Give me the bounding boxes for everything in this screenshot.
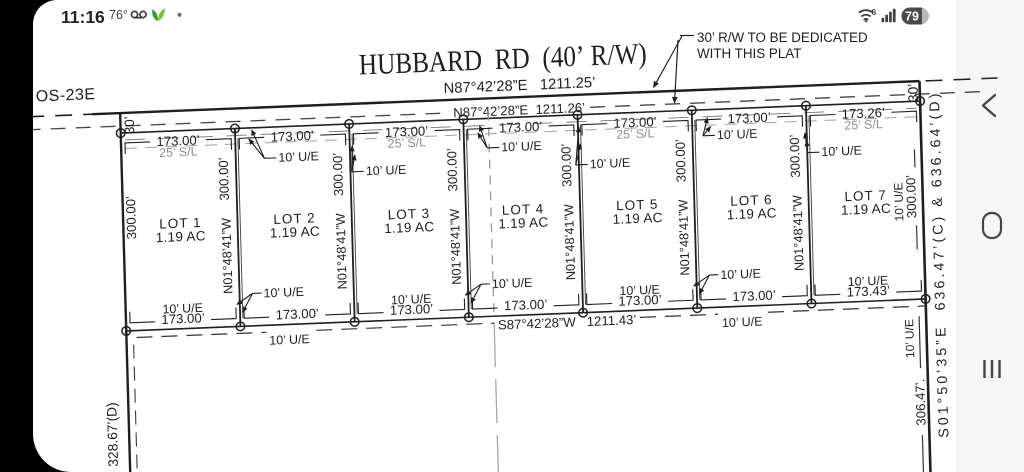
svg-text:25’ S/L: 25’ S/L (387, 135, 426, 151)
svg-text:173.00’: 173.00’ (270, 128, 314, 145)
svg-text:1.19 AC: 1.19 AC (270, 224, 320, 241)
svg-text:10’ U/E: 10’ U/E (501, 139, 542, 155)
svg-text:173.00’: 173.00’ (275, 306, 319, 323)
svg-text:10’ U/E: 10’ U/E (720, 267, 761, 283)
svg-text:N01°48’41”W: N01°48’41”W (447, 207, 464, 285)
svg-text:N01°48’41”W: N01°48’41”W (333, 212, 350, 290)
svg-text:30’ R/W TO BE DEDICATED: 30’ R/W TO BE DEDICATED (697, 30, 868, 45)
svg-text:10’ U/E: 10’ U/E (391, 292, 432, 308)
svg-text:10’ U/E: 10’ U/E (902, 319, 917, 358)
svg-text:10’ U/E: 10’ U/E (891, 182, 906, 221)
svg-text:N01°48’41”W: N01°48’41”W (789, 194, 806, 272)
svg-text:6: 6 (872, 7, 877, 17)
svg-text:10’ U/E: 10’ U/E (848, 273, 889, 289)
svg-text:25’ S/L: 25’ S/L (616, 126, 655, 142)
svg-text:173.00’: 173.00’ (504, 297, 548, 314)
svg-text:N01°48’41”W: N01°48’41”W (675, 198, 692, 276)
svg-text:10’ U/E: 10’ U/E (619, 283, 660, 299)
svg-text:300.00’: 300.00’ (673, 139, 689, 183)
svg-text:10’ U/E: 10’ U/E (717, 127, 758, 143)
svg-text:300.00’: 300.00’ (330, 152, 346, 196)
svg-text:11:16: 11:16 (61, 7, 105, 27)
svg-text:300.00’: 300.00’ (558, 143, 574, 187)
svg-text:300.00’: 300.00’ (123, 196, 139, 240)
svg-text:300.00’: 300.00’ (787, 134, 803, 178)
svg-text:S01°50’35”E 636.47’(C) & 636.: S01°50’35”E 636.47’(C) & 636.64’(D) (927, 93, 953, 438)
svg-text:10’ U/E: 10’ U/E (722, 314, 763, 330)
svg-text:10’ U/E: 10’ U/E (492, 276, 533, 292)
svg-text:N01°48’41”W: N01°48’41”W (218, 217, 235, 295)
svg-text:300.00’: 300.00’ (444, 148, 460, 192)
svg-text:1.19 AC: 1.19 AC (612, 210, 662, 227)
svg-text:1.19 AC: 1.19 AC (727, 205, 777, 222)
svg-text:25’ S/L: 25’ S/L (844, 117, 883, 133)
svg-text:79: 79 (905, 10, 919, 24)
svg-text:173.00’: 173.00’ (732, 287, 776, 304)
svg-text:N01°48’41”W: N01°48’41”W (561, 203, 578, 281)
svg-text:10’ U/E: 10’ U/E (263, 285, 304, 301)
svg-text:10’ U/E: 10’ U/E (162, 301, 203, 317)
svg-text:1.19 AC: 1.19 AC (155, 228, 205, 245)
svg-text:1.19 AC: 1.19 AC (384, 219, 434, 236)
svg-text:76°: 76° (109, 8, 128, 22)
svg-text:10’ U/E: 10’ U/E (821, 143, 862, 159)
svg-text:300.00’: 300.00’ (216, 157, 232, 201)
svg-text:10’ U/E: 10’ U/E (278, 149, 319, 165)
svg-text:173.00’: 173.00’ (727, 110, 771, 127)
svg-text:HUBBARD RD (40’ R/W): HUBBARD RD (40’ R/W) (358, 38, 647, 82)
svg-text:OS-23E: OS-23E (35, 86, 95, 105)
svg-text:1.19 AC: 1.19 AC (498, 215, 548, 232)
svg-text:328.67’(D): 328.67’(D) (104, 402, 121, 467)
svg-text:WITH THIS PLAT: WITH THIS PLAT (697, 46, 801, 61)
svg-text:10’ U/E: 10’ U/E (590, 156, 631, 172)
svg-text:30’: 30’ (905, 83, 922, 102)
svg-text:173.00’: 173.00’ (499, 119, 543, 136)
svg-text:10’ U/E: 10’ U/E (269, 332, 310, 348)
svg-text:25’ S/L: 25’ S/L (159, 145, 198, 161)
svg-text:1.19 AC: 1.19 AC (841, 201, 891, 218)
svg-text:10’ U/E: 10’ U/E (366, 163, 407, 179)
svg-text:306.47’.: 306.47’. (912, 378, 928, 426)
